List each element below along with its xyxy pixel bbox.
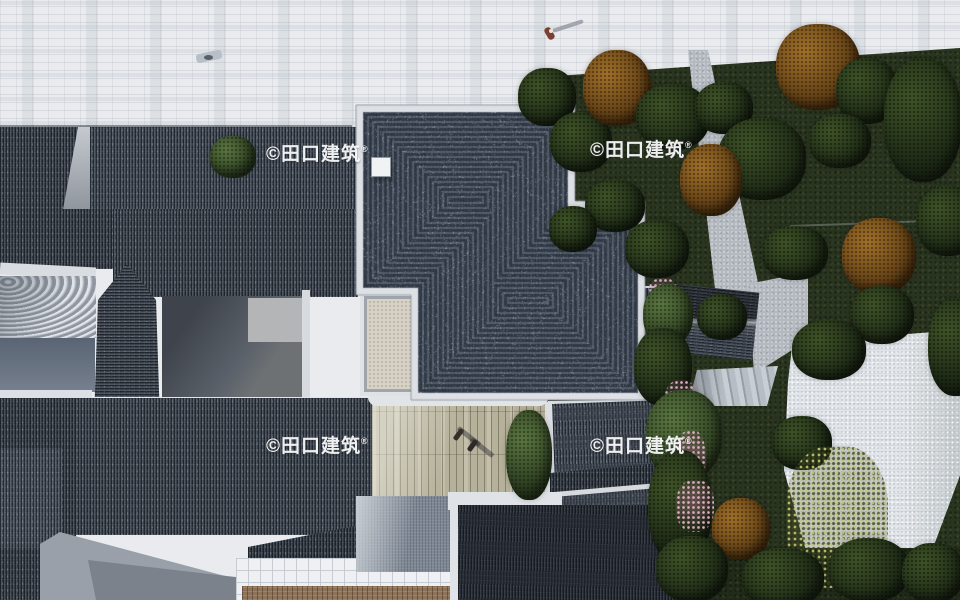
- roof-left-d: [113, 209, 358, 297]
- registered-mark: ®: [685, 140, 693, 150]
- registered-mark: ®: [361, 144, 369, 154]
- watermark: ©田口建筑®: [266, 144, 369, 166]
- registered-mark: ®: [361, 436, 369, 446]
- weathered-roof: [0, 276, 96, 338]
- white-stone-plaza: [780, 330, 960, 560]
- tan-walkway: [242, 586, 454, 600]
- roof-left-edge-light: [0, 448, 62, 548]
- bottom-hedge: [648, 548, 960, 600]
- gatehouse-ridge-shading: [665, 284, 760, 361]
- stone-steps: [688, 366, 778, 406]
- watermark: ©田口建筑®: [590, 140, 693, 162]
- person-head: [549, 29, 553, 33]
- watermark-text: ©田口建筑: [266, 144, 361, 165]
- roof-left-lower: [75, 398, 372, 535]
- skylight: [371, 157, 391, 177]
- watermark: ©田口建筑®: [590, 436, 693, 458]
- registered-mark: ®: [685, 436, 693, 446]
- aerial-render-scene: ©田口建筑® ©田口建筑® ©田口建筑® ©田口建筑®: [0, 0, 960, 600]
- roof-left-c: [0, 209, 115, 269]
- courtyard-floor: [248, 298, 304, 342]
- roof-left-b: [90, 127, 358, 211]
- watermark-text: ©田口建筑: [590, 140, 685, 161]
- watermark-text: ©田口建筑: [590, 436, 685, 457]
- stone-shadow: [204, 55, 213, 60]
- courtyard-beige-paving: [372, 398, 548, 498]
- annex-roof-south: [458, 505, 676, 600]
- watermark-text: ©田口建筑: [266, 436, 361, 457]
- courtyard-wall-face: [0, 338, 95, 392]
- courtyard-edge-wall: [302, 290, 310, 400]
- watermark: ©田口建筑®: [266, 436, 369, 458]
